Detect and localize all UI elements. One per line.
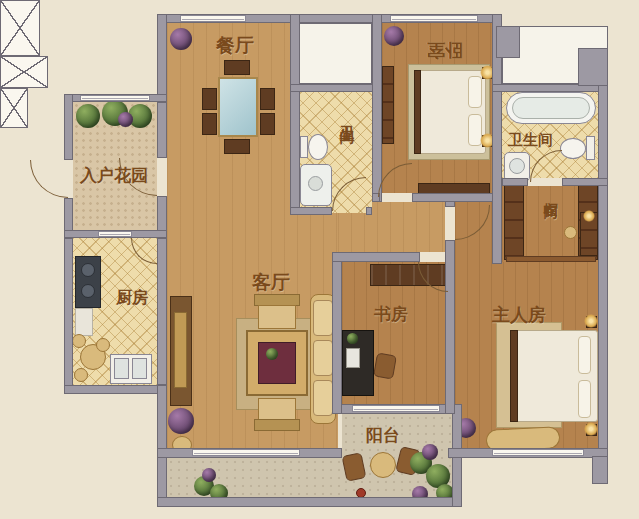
plant-icon bbox=[168, 408, 194, 434]
master-bed-footboard bbox=[510, 330, 518, 422]
burner-icon bbox=[81, 263, 95, 277]
room-label-closet: 衣帽间 bbox=[542, 190, 560, 196]
sink-basin bbox=[114, 358, 129, 379]
dining-chair bbox=[202, 113, 217, 135]
shower-drain-icon bbox=[308, 176, 323, 191]
plant-icon bbox=[422, 444, 438, 460]
dining-chair bbox=[260, 88, 275, 110]
dining-table bbox=[218, 77, 258, 137]
duct-shaft-icon-top bbox=[0, 0, 40, 56]
kitchen-stool bbox=[96, 338, 110, 352]
bedroom-window bbox=[390, 15, 478, 22]
wall-bottom bbox=[157, 497, 462, 507]
dining-chair bbox=[224, 60, 250, 75]
wall-lightwell-post-left bbox=[496, 26, 520, 58]
plant-icon bbox=[384, 26, 404, 46]
wall-master-east bbox=[598, 84, 608, 458]
room-label-living: 客厅 bbox=[252, 270, 290, 296]
lamp-icon bbox=[583, 210, 595, 222]
desk-chair bbox=[373, 352, 397, 379]
wall-bathroom-1-north bbox=[290, 84, 382, 92]
entry-door-arc bbox=[30, 160, 68, 198]
duct-shaft-icon-bottom bbox=[0, 88, 28, 128]
master-window bbox=[492, 449, 584, 456]
wall-bathroom-1-south-post bbox=[366, 207, 372, 215]
utility-shaft-area bbox=[296, 23, 372, 84]
duct-shaft-icon-right bbox=[0, 56, 48, 88]
room-label-balcony: 阳台 bbox=[366, 424, 400, 447]
sofa-cushion bbox=[313, 340, 333, 376]
plant-icon bbox=[76, 104, 100, 128]
wall-corner-post-se bbox=[592, 456, 608, 484]
wall-bathroom-2-south-b bbox=[562, 178, 608, 186]
plant-icon bbox=[170, 28, 192, 50]
wall-kitchen-bottom bbox=[64, 385, 167, 394]
living-window bbox=[192, 449, 300, 456]
closet-threshold bbox=[506, 256, 596, 262]
kitchen-window bbox=[98, 231, 132, 237]
pillow bbox=[578, 380, 591, 418]
wall-study-north bbox=[332, 252, 420, 262]
garden-window bbox=[80, 95, 150, 101]
floor-plan: 餐厅 入户花园 厨房 客厅 卫生间 卧室 卫生间 衣帽间 书房 主人房 阳台 bbox=[0, 0, 639, 519]
sink-basin bbox=[132, 358, 147, 379]
room-label-kitchen: 厨房 bbox=[116, 288, 148, 309]
wall-bedroom-west bbox=[372, 14, 382, 202]
kitchen-counter bbox=[75, 308, 93, 336]
wall-dining-west-upper bbox=[157, 14, 167, 102]
sofa-cushion bbox=[313, 300, 333, 336]
toilet-tank bbox=[300, 136, 308, 158]
wall-living-west-lower bbox=[157, 385, 167, 507]
coffee-table-decor bbox=[258, 342, 296, 384]
lamp-icon bbox=[584, 314, 598, 328]
tv-cabinet-top bbox=[174, 312, 187, 388]
room-label-entrance-garden: 入户花园 bbox=[80, 164, 148, 187]
room-label-bedroom: 卧室 bbox=[427, 38, 463, 62]
bed-footboard bbox=[414, 70, 421, 154]
plant-icon bbox=[118, 112, 133, 127]
wall-garden-dining-upper bbox=[157, 102, 167, 158]
room-label-master-bedroom: 主人房 bbox=[492, 303, 546, 327]
toilet-tank bbox=[586, 136, 595, 160]
toilet bbox=[308, 134, 328, 160]
sofa-cushion bbox=[313, 380, 333, 416]
plant-icon bbox=[202, 468, 216, 482]
desk-paper bbox=[346, 348, 360, 368]
dining-window bbox=[180, 15, 246, 22]
balcony-window bbox=[352, 405, 440, 412]
kitchen-stool bbox=[72, 334, 86, 348]
wall-lightwell-post-right bbox=[578, 48, 608, 86]
dining-chair bbox=[224, 139, 250, 154]
lamp-icon bbox=[584, 422, 598, 436]
closet-wardrobe-left bbox=[504, 184, 524, 260]
pillow bbox=[578, 336, 591, 374]
wall-kitchen-left bbox=[64, 238, 73, 393]
dresser-stool bbox=[564, 226, 577, 239]
armchair-back bbox=[254, 419, 300, 431]
table-plant-icon bbox=[266, 348, 278, 360]
bathtub-inner bbox=[512, 97, 590, 119]
wall-bedroom-south bbox=[412, 193, 502, 202]
wall-bathroom-2-south-a bbox=[502, 178, 528, 186]
dining-chair bbox=[260, 113, 275, 135]
wall-dining-east bbox=[290, 14, 300, 210]
room-label-bathroom-2: 卫生间 bbox=[508, 131, 553, 150]
armchair bbox=[258, 398, 296, 420]
burner-icon bbox=[81, 284, 95, 298]
armchair bbox=[258, 305, 296, 329]
toilet bbox=[560, 138, 586, 159]
bedroom-wardrobe bbox=[382, 66, 394, 144]
pillow bbox=[468, 76, 482, 108]
wall-study-west bbox=[332, 252, 342, 414]
desk-plant-icon bbox=[347, 333, 358, 344]
wall-garden-left-upper bbox=[64, 94, 73, 160]
dining-chair bbox=[202, 88, 217, 110]
room-label-bathroom-1: 卫生间 bbox=[337, 113, 356, 119]
basin-icon bbox=[509, 158, 525, 174]
planter-strip-floor bbox=[167, 458, 342, 497]
room-label-dining: 餐厅 bbox=[216, 33, 254, 59]
balcony-table bbox=[370, 452, 396, 478]
wall-living-west bbox=[157, 238, 167, 385]
kitchen-stool bbox=[74, 368, 88, 382]
wall-bathroom-1-south bbox=[290, 207, 332, 215]
room-label-study: 书房 bbox=[374, 303, 408, 326]
